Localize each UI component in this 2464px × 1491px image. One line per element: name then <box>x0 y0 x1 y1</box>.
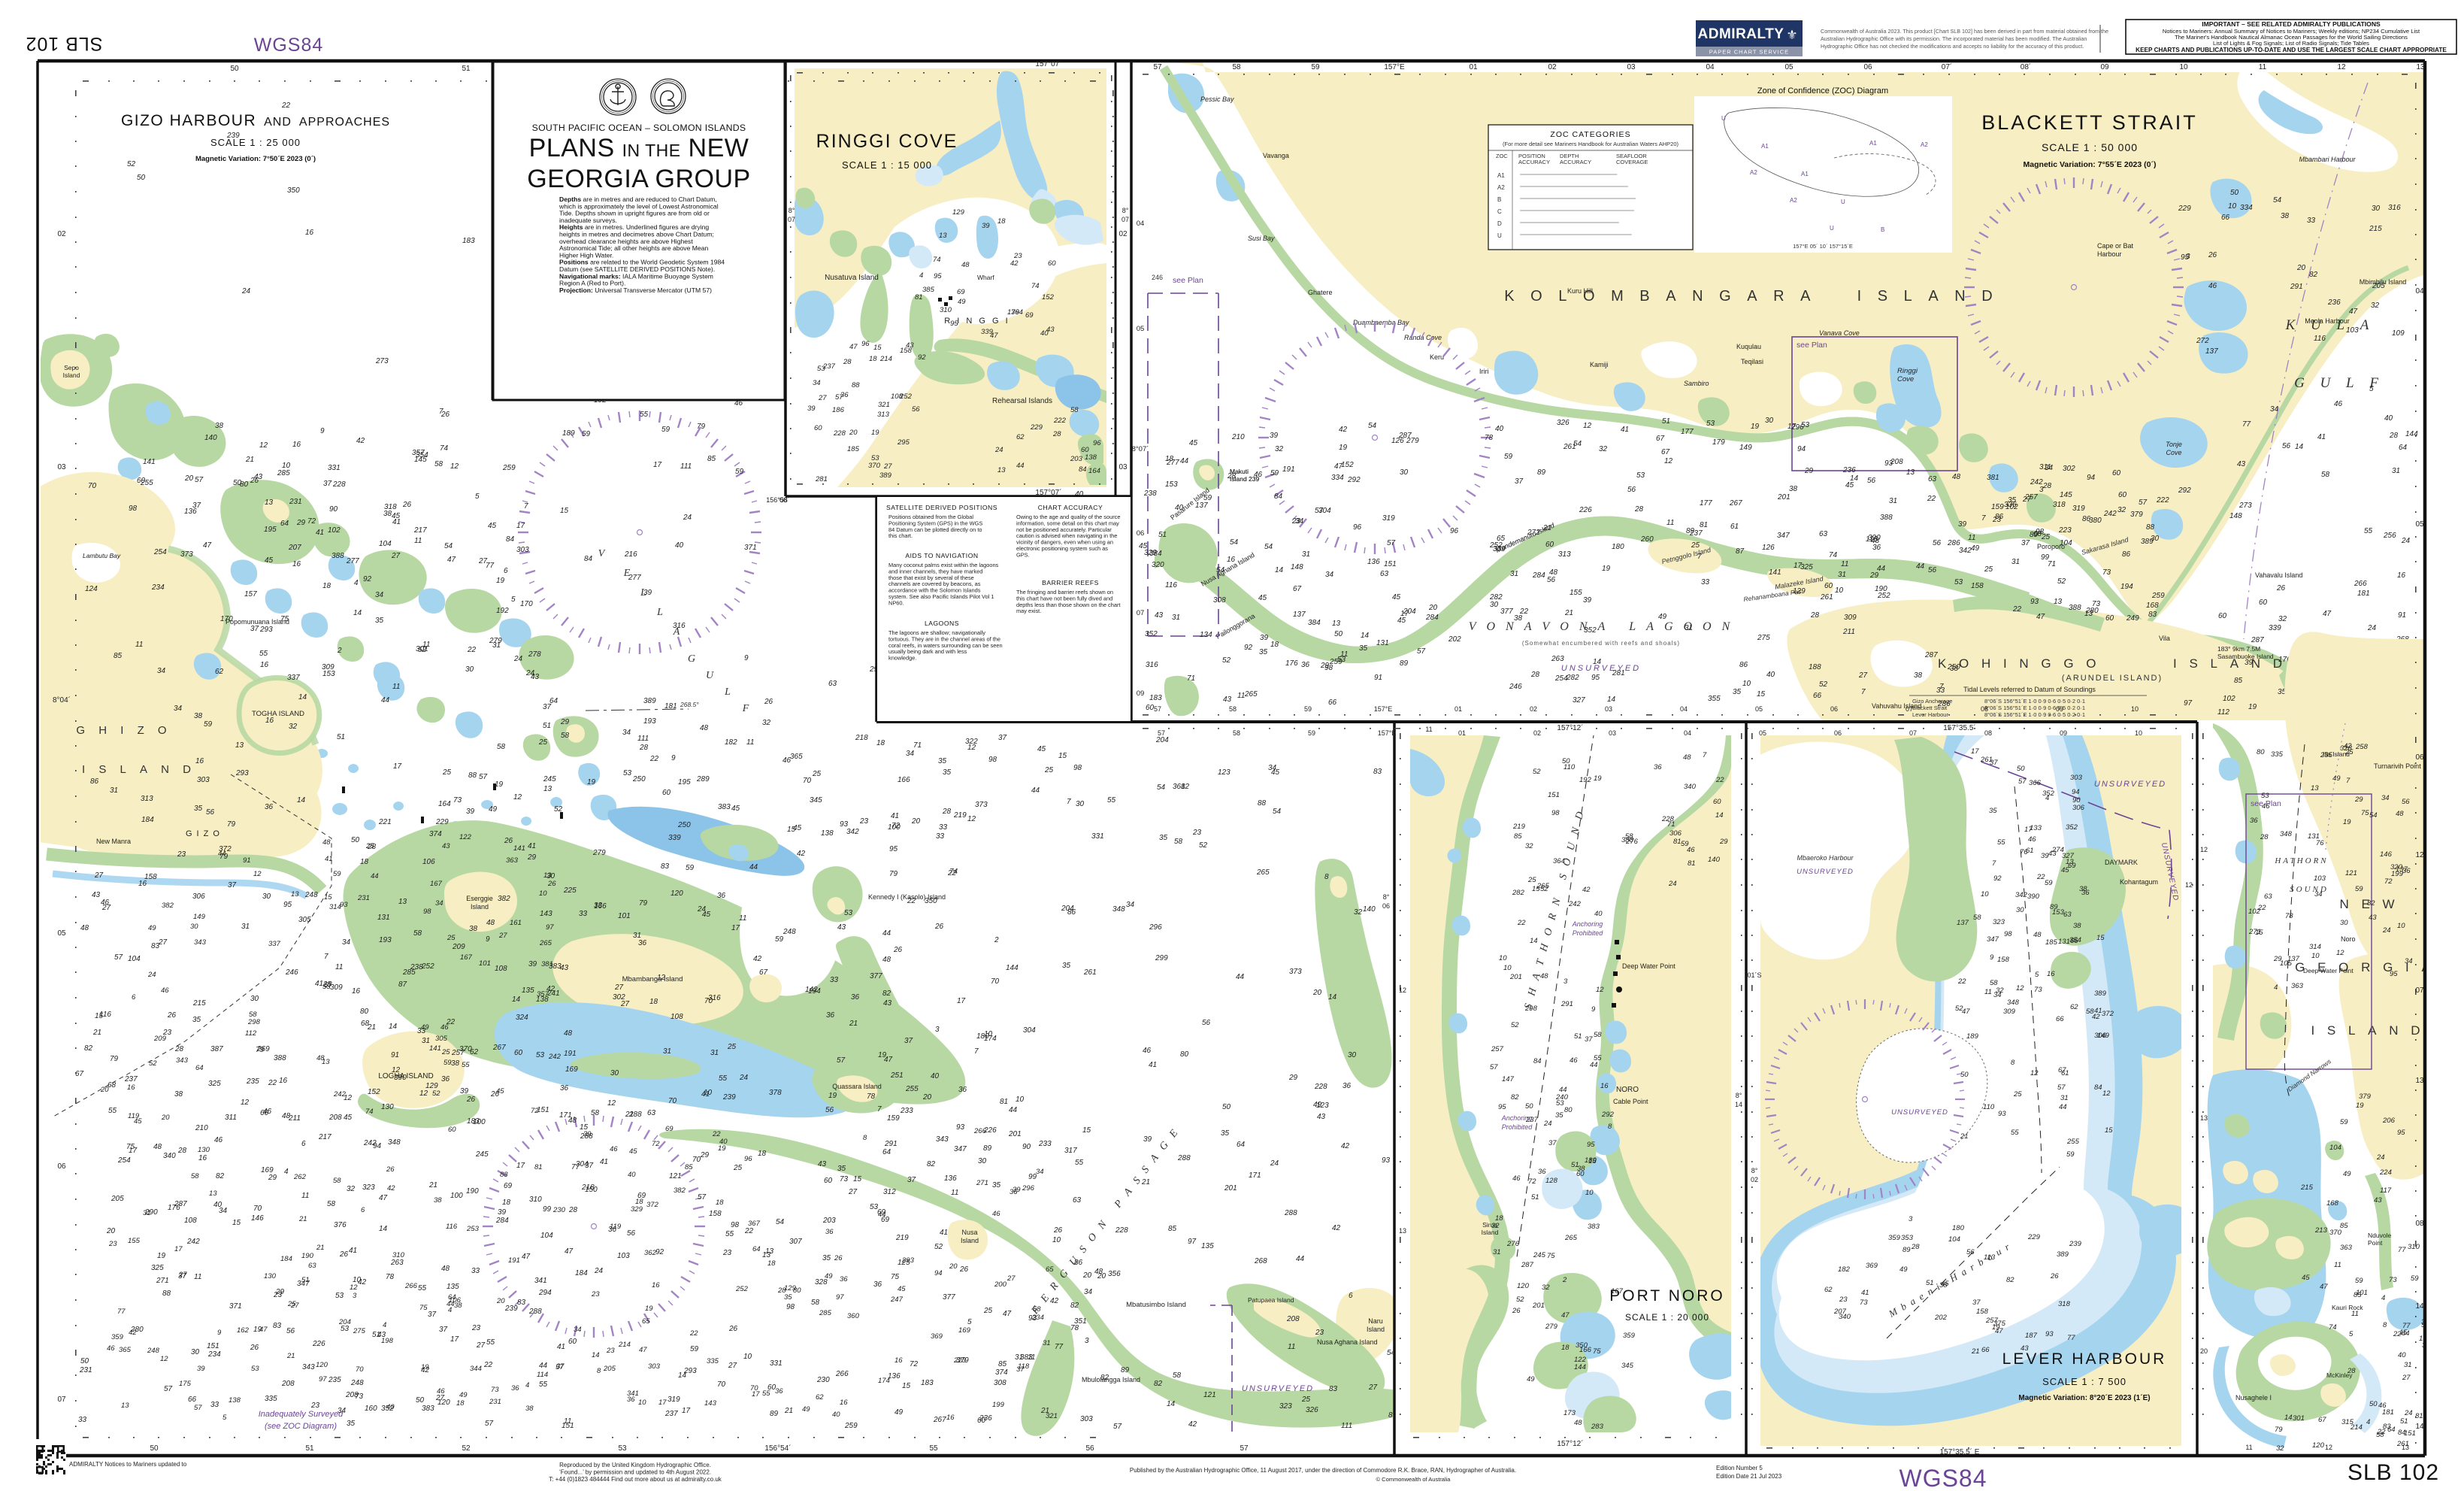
svg-text:363: 363 <box>506 856 519 865</box>
svg-text:52: 52 <box>1819 680 1828 689</box>
svg-text:88: 88 <box>2146 523 2155 532</box>
svg-text:UNSURVEYED: UNSURVEYED <box>1797 868 1854 876</box>
svg-text:41: 41 <box>1621 426 1629 434</box>
svg-text:54: 54 <box>2369 811 2378 820</box>
svg-text:57: 57 <box>2018 777 2027 786</box>
svg-text:A2: A2 <box>1750 169 1757 176</box>
svg-text:340: 340 <box>163 1152 176 1160</box>
svg-text:59: 59 <box>661 426 670 434</box>
svg-text:81: 81 <box>534 1163 543 1171</box>
svg-text:189: 189 <box>562 429 575 438</box>
svg-text:36: 36 <box>560 1084 569 1092</box>
svg-text:86: 86 <box>1074 1259 1083 1267</box>
svg-text:10: 10 <box>1981 890 1989 899</box>
svg-text:25: 25 <box>538 738 548 747</box>
svg-text:254: 254 <box>153 548 167 556</box>
svg-text:63: 63 <box>2264 892 2272 901</box>
svg-text:28: 28 <box>2260 833 2269 841</box>
svg-text:UNSURVEYED: UNSURVEYED <box>1891 1108 1948 1117</box>
svg-text:12: 12 <box>657 974 666 982</box>
svg-text:106: 106 <box>422 858 435 866</box>
svg-text:46: 46 <box>1254 471 1263 479</box>
svg-text:73: 73 <box>840 1175 849 1183</box>
svg-text:248: 248 <box>304 891 318 899</box>
svg-text:241: 241 <box>546 989 560 998</box>
svg-text:6: 6 <box>1349 1292 1353 1300</box>
svg-text:92: 92 <box>918 353 926 362</box>
svg-text:258: 258 <box>2355 743 2369 751</box>
svg-text:29: 29 <box>1804 467 1814 475</box>
svg-text:34: 34 <box>2405 957 2413 965</box>
svg-text:58: 58 <box>191 1172 199 1180</box>
svg-text:51: 51 <box>372 1331 380 1339</box>
svg-text:10: 10 <box>2397 922 2405 930</box>
svg-text:9: 9 <box>320 427 325 435</box>
svg-text:373: 373 <box>975 801 988 809</box>
svg-text:152: 152 <box>368 1088 380 1096</box>
svg-text:22: 22 <box>483 1361 493 1369</box>
svg-text:31: 31 <box>1015 1353 1023 1362</box>
svg-text:156°54´: 156°54´ <box>764 1444 791 1453</box>
svg-text:31: 31 <box>2060 1094 2069 1102</box>
svg-text:252: 252 <box>1489 541 1503 550</box>
svg-text:58: 58 <box>1233 729 1240 737</box>
svg-text:382: 382 <box>498 895 510 903</box>
svg-text:37: 37 <box>904 1037 913 1045</box>
svg-text:58: 58 <box>497 743 506 751</box>
svg-text:27: 27 <box>848 1188 858 1196</box>
svg-text:206: 206 <box>2382 1117 2396 1125</box>
svg-text:10: 10 <box>1742 680 1751 688</box>
svg-text:372: 372 <box>646 1201 659 1209</box>
svg-text:38: 38 <box>1789 485 1798 493</box>
svg-text:214: 214 <box>618 1341 631 1349</box>
svg-text:39: 39 <box>982 222 990 230</box>
svg-text:35: 35 <box>837 1165 846 1173</box>
svg-text:56: 56 <box>825 1106 834 1114</box>
svg-text:118: 118 <box>1018 1362 1030 1371</box>
svg-text:67: 67 <box>1661 448 1670 456</box>
svg-text:35: 35 <box>1259 648 1268 656</box>
svg-text:13: 13 <box>322 1058 330 1066</box>
svg-text:58: 58 <box>591 1109 600 1117</box>
svg-text:48: 48 <box>486 919 495 927</box>
svg-text:7: 7 <box>1703 751 1707 759</box>
svg-text:108: 108 <box>184 1217 197 1225</box>
svg-text:34: 34 <box>813 379 821 387</box>
svg-text:230: 230 <box>816 1376 830 1384</box>
svg-text:52: 52 <box>1955 1005 1963 1013</box>
svg-text:48: 48 <box>961 261 970 269</box>
svg-text:77: 77 <box>2242 420 2251 429</box>
svg-text:385: 385 <box>922 286 935 294</box>
svg-text:265: 265 <box>1244 690 1258 699</box>
svg-text:39: 39 <box>498 1208 507 1217</box>
svg-text:18: 18 <box>502 1199 511 1207</box>
svg-text:84: 84 <box>506 535 515 544</box>
svg-text:261: 261 <box>1820 593 1833 602</box>
svg-text:28: 28 <box>843 358 852 366</box>
svg-text:56: 56 <box>286 1327 295 1335</box>
svg-text:59: 59 <box>775 935 784 944</box>
svg-text:69: 69 <box>881 1216 890 1224</box>
svg-text:7: 7 <box>1067 798 1071 806</box>
svg-text:37: 37 <box>439 1326 448 1334</box>
svg-text:59: 59 <box>2411 1274 2419 1283</box>
svg-text:271: 271 <box>976 1179 988 1187</box>
svg-text:215: 215 <box>2369 225 2382 233</box>
svg-text:20: 20 <box>922 1093 932 1102</box>
svg-text:29: 29 <box>1719 838 1728 846</box>
svg-text:50: 50 <box>1222 1103 1231 1111</box>
svg-text:45: 45 <box>898 1285 906 1293</box>
svg-text:60: 60 <box>1146 704 1155 712</box>
svg-text:13: 13 <box>997 466 1006 474</box>
svg-text:15: 15 <box>873 344 882 352</box>
svg-text:379: 379 <box>2359 1092 2372 1101</box>
svg-text:45: 45 <box>134 1117 142 1126</box>
svg-text:208: 208 <box>1890 458 1903 466</box>
svg-text:143: 143 <box>704 1399 717 1408</box>
svg-text:5: 5 <box>222 1414 227 1422</box>
svg-text:85: 85 <box>685 1163 693 1171</box>
svg-text:(Somewhat encumbered with reef: (Somewhat encumbered with reefs and shoa… <box>1522 640 1680 647</box>
svg-text:334: 334 <box>2240 204 2253 212</box>
svg-text:34: 34 <box>1036 1168 1044 1176</box>
svg-text:383: 383 <box>1588 1223 1600 1231</box>
svg-text:07: 07 <box>57 1396 66 1404</box>
svg-text:95: 95 <box>889 845 898 853</box>
svg-text:32: 32 <box>2371 302 2380 310</box>
svg-text:37: 37 <box>1515 477 1524 486</box>
svg-text:26: 26 <box>2208 251 2217 259</box>
svg-text:4: 4 <box>284 1168 289 1176</box>
svg-text:289: 289 <box>696 775 710 783</box>
svg-text:69: 69 <box>1025 311 1034 320</box>
svg-text:72: 72 <box>1528 1177 1536 1186</box>
svg-text:148: 148 <box>1291 563 1303 571</box>
svg-text:49: 49 <box>1971 544 1980 553</box>
svg-text:377: 377 <box>1500 608 1513 616</box>
svg-text:56: 56 <box>1627 486 1636 494</box>
svg-text:255: 255 <box>2066 1138 2080 1146</box>
svg-text:18: 18 <box>1561 1344 1570 1352</box>
svg-text:20: 20 <box>849 429 858 437</box>
svg-text:19: 19 <box>2343 818 2351 826</box>
svg-text:56: 56 <box>1928 566 1937 574</box>
svg-text:55: 55 <box>462 1061 470 1069</box>
svg-text:248: 248 <box>782 928 796 936</box>
svg-text:304: 304 <box>1318 507 1331 515</box>
svg-text:09: 09 <box>1137 689 1145 698</box>
svg-text:222: 222 <box>1053 417 1067 425</box>
svg-text:46: 46 <box>101 899 110 907</box>
svg-text:22: 22 <box>2257 904 2266 912</box>
svg-text:141: 141 <box>143 458 156 466</box>
svg-text:98: 98 <box>2004 930 2012 938</box>
svg-text:01: 01 <box>1469 63 1478 71</box>
svg-text:Naru: Naru <box>1368 1317 1383 1325</box>
svg-text:26: 26 <box>959 1265 969 1274</box>
svg-text:44: 44 <box>882 929 891 938</box>
svg-text:86: 86 <box>90 777 99 786</box>
svg-text:05: 05 <box>1137 325 1145 333</box>
svg-text:41: 41 <box>1861 1289 1869 1297</box>
svg-text:359: 359 <box>1623 1332 1636 1340</box>
svg-text:138: 138 <box>821 829 834 838</box>
svg-text:175: 175 <box>179 1380 192 1388</box>
svg-text:39: 39 <box>1958 520 1967 529</box>
svg-text:144: 144 <box>1006 964 1019 972</box>
svg-text:34: 34 <box>906 750 915 758</box>
svg-text:380: 380 <box>2089 517 2102 525</box>
svg-text:21: 21 <box>1971 1347 1980 1356</box>
svg-text:19: 19 <box>828 1092 837 1100</box>
svg-text:59: 59 <box>690 1345 699 1353</box>
svg-text:86: 86 <box>1067 908 1076 917</box>
svg-text:Edition Date 21 Jul 2023: Edition Date 21 Jul 2023 <box>1716 1473 1782 1480</box>
svg-text:08: 08 <box>1984 729 1992 737</box>
svg-text:68: 68 <box>361 1020 370 1028</box>
svg-text:70: 70 <box>991 977 1000 986</box>
svg-text:294: 294 <box>538 1289 552 1297</box>
svg-text:69: 69 <box>504 1182 513 1190</box>
svg-text:44: 44 <box>1180 457 1189 465</box>
svg-text:LEVER HARBOUR: LEVER HARBOUR <box>2002 1350 2167 1368</box>
svg-text:32: 32 <box>1525 842 1533 850</box>
svg-text:335: 335 <box>2271 750 2284 759</box>
svg-text:56: 56 <box>912 405 920 414</box>
svg-text:226: 226 <box>312 1340 325 1348</box>
svg-text:18: 18 <box>767 1259 776 1268</box>
svg-text:Wharf: Wharf <box>977 274 994 281</box>
svg-text:248: 248 <box>350 1379 364 1387</box>
svg-text:07: 07 <box>1122 216 1129 223</box>
svg-text:121: 121 <box>1203 1391 1216 1399</box>
svg-text:82: 82 <box>2006 1276 2014 1284</box>
svg-text:235: 235 <box>328 1376 341 1384</box>
svg-text:21: 21 <box>298 1215 307 1223</box>
svg-text:52: 52 <box>462 1444 471 1453</box>
svg-text:18: 18 <box>997 217 1006 226</box>
svg-text:135: 135 <box>446 1283 459 1291</box>
svg-text:47: 47 <box>1561 1311 1570 1320</box>
svg-text:36: 36 <box>1010 1188 1018 1196</box>
svg-text:59: 59 <box>2045 879 2053 887</box>
svg-text:366: 366 <box>2029 779 2042 787</box>
svg-text:55: 55 <box>418 1284 427 1293</box>
svg-text:353: 353 <box>1901 1234 1914 1242</box>
svg-text:292: 292 <box>1347 476 1361 484</box>
svg-text:377: 377 <box>943 1293 955 1302</box>
svg-text:31: 31 <box>2392 467 2400 475</box>
svg-text:93: 93 <box>1998 1110 2006 1118</box>
svg-text:183° 9km 7.5M: 183° 9km 7.5M <box>2217 645 2260 653</box>
svg-text:253: 253 <box>466 1225 480 1233</box>
svg-text:32: 32 <box>1599 445 1608 453</box>
svg-text:48: 48 <box>882 956 891 964</box>
svg-text:71: 71 <box>1187 674 1195 683</box>
svg-text:8: 8 <box>2011 1059 2015 1067</box>
svg-text:283: 283 <box>1591 1423 1604 1431</box>
svg-text:22: 22 <box>2036 873 2045 881</box>
svg-text:104: 104 <box>1948 1235 1960 1244</box>
svg-text:12: 12 <box>513 793 522 802</box>
svg-text:389: 389 <box>2141 538 2154 546</box>
svg-text:46: 46 <box>992 1210 1000 1218</box>
svg-text:167: 167 <box>460 953 473 962</box>
svg-text:40: 40 <box>931 1072 940 1080</box>
svg-text:Vila: Vila <box>2159 635 2170 642</box>
svg-text:42: 42 <box>1339 426 1348 434</box>
svg-text:167: 167 <box>430 880 443 888</box>
svg-text:B: B <box>1497 196 1501 203</box>
svg-text:35: 35 <box>938 757 947 765</box>
svg-text:267: 267 <box>1729 499 1742 508</box>
svg-text:see Plan: see Plan <box>1797 341 1827 350</box>
svg-text:Sepo: Sepo <box>64 364 79 371</box>
svg-text:33: 33 <box>579 910 588 918</box>
svg-text:72: 72 <box>652 1140 660 1148</box>
svg-text:02: 02 <box>1751 1176 1758 1183</box>
svg-text:A2: A2 <box>1497 184 1505 191</box>
svg-text:41: 41 <box>557 1343 565 1351</box>
svg-text:45: 45 <box>1189 439 1198 447</box>
svg-text:22: 22 <box>689 1329 698 1338</box>
svg-text:43: 43 <box>531 673 540 681</box>
svg-text:224: 224 <box>2379 1168 2392 1177</box>
svg-text:21: 21 <box>1542 524 1551 532</box>
svg-text:135: 135 <box>522 986 534 995</box>
svg-text:246: 246 <box>285 968 298 977</box>
svg-text:82: 82 <box>1100 1374 1109 1382</box>
svg-text:40: 40 <box>719 1138 728 1146</box>
svg-text:LAGOONS: LAGOONS <box>925 620 959 627</box>
svg-text:228: 228 <box>833 429 846 438</box>
svg-text:Magnetic Variation: 7°55´E 202: Magnetic Variation: 7°55´E 2023 (0´) <box>2024 160 2157 169</box>
svg-text:36: 36 <box>638 939 647 947</box>
svg-text:208: 208 <box>1286 1315 1300 1323</box>
svg-text:57: 57 <box>1158 729 1165 737</box>
svg-text:28: 28 <box>639 744 649 752</box>
svg-text:59: 59 <box>1304 705 1312 713</box>
svg-text:60: 60 <box>1713 798 1721 806</box>
svg-text:29: 29 <box>296 519 306 527</box>
svg-text:SCALE 1 : 15 000: SCALE 1 : 15 000 <box>842 159 932 171</box>
svg-text:313: 313 <box>877 411 890 419</box>
svg-text:23: 23 <box>859 817 869 826</box>
svg-text:06: 06 <box>1830 705 1838 713</box>
svg-text:44: 44 <box>1590 1061 1598 1069</box>
svg-text:153: 153 <box>1165 480 1178 489</box>
svg-text:22: 22 <box>1715 776 1724 784</box>
svg-text:25: 25 <box>1527 876 1536 884</box>
svg-text:379: 379 <box>2130 511 2143 519</box>
svg-text:155: 155 <box>128 1237 141 1245</box>
svg-text:74: 74 <box>1031 282 1040 290</box>
svg-text:78: 78 <box>2285 912 2293 920</box>
svg-text:10: 10 <box>638 1399 646 1407</box>
svg-text:05: 05 <box>1755 705 1763 713</box>
svg-text:348: 348 <box>1112 905 1125 914</box>
svg-text:370: 370 <box>459 1045 472 1053</box>
svg-text:334: 334 <box>1331 474 1344 482</box>
svg-text:205: 205 <box>110 1195 124 1203</box>
svg-text:8: 8 <box>2383 1321 2387 1329</box>
svg-text:45: 45 <box>2061 866 2069 874</box>
svg-text:56: 56 <box>2282 442 2291 450</box>
svg-text:23: 23 <box>1315 1329 1324 1337</box>
svg-text:50: 50 <box>351 836 360 844</box>
svg-text:151: 151 <box>1384 560 1397 568</box>
svg-text:A2: A2 <box>1921 141 1928 148</box>
svg-text:176: 176 <box>1285 659 1298 668</box>
svg-text:New Manra: New Manra <box>96 838 131 845</box>
svg-text:01: 01 <box>1458 729 1466 737</box>
svg-text:136: 136 <box>944 1174 957 1183</box>
svg-text:10: 10 <box>2311 952 2320 960</box>
svg-text:55: 55 <box>929 1444 938 1453</box>
svg-text:59: 59 <box>582 430 591 438</box>
svg-text:374: 374 <box>995 1368 1008 1377</box>
svg-text:345: 345 <box>810 796 822 805</box>
svg-text:60: 60 <box>568 1338 577 1346</box>
svg-text:14: 14 <box>298 693 307 702</box>
svg-text:364: 364 <box>1553 857 1565 865</box>
svg-text:64: 64 <box>1237 1141 1246 1149</box>
svg-text:26: 26 <box>466 1096 476 1104</box>
svg-text:30: 30 <box>2016 906 2024 914</box>
svg-text:211: 211 <box>288 1114 301 1123</box>
svg-text:07: 07 <box>1137 609 1145 617</box>
svg-text:268: 268 <box>1254 1257 1267 1265</box>
svg-text:20: 20 <box>1312 989 1322 997</box>
svg-text:electronic positioning system: electronic positioning system such as <box>1016 545 1108 552</box>
svg-text:UNSURVEYED: UNSURVEYED <box>2094 780 2166 789</box>
svg-text:54: 54 <box>1264 543 1273 551</box>
svg-text:81: 81 <box>2415 1412 2423 1420</box>
svg-text:308: 308 <box>994 1379 1006 1387</box>
svg-text:32: 32 <box>289 723 298 731</box>
svg-text:Commonwealth of Australia 2023: Commonwealth of Australia 2023. This pro… <box>1821 28 2108 35</box>
svg-text:111: 111 <box>1341 1422 1352 1430</box>
svg-text:60: 60 <box>2118 491 2127 499</box>
svg-text:208: 208 <box>281 1380 295 1388</box>
svg-text:95: 95 <box>1498 1103 1506 1111</box>
svg-text:24: 24 <box>513 655 523 663</box>
svg-text:168: 168 <box>2146 602 2159 610</box>
svg-text:40: 40 <box>1766 671 1775 679</box>
svg-text:42: 42 <box>1332 1224 1341 1232</box>
svg-text:COVERAGE: COVERAGE <box>1616 159 1648 165</box>
svg-text:54: 54 <box>1230 538 1239 547</box>
svg-text:44: 44 <box>1031 786 1040 795</box>
svg-text:62: 62 <box>1824 1286 1833 1294</box>
svg-text:26: 26 <box>764 698 773 706</box>
svg-text:50: 50 <box>1525 1102 1533 1111</box>
svg-text:37: 37 <box>2021 539 2030 547</box>
svg-text:60: 60 <box>514 1049 523 1057</box>
svg-text:Kauri Rock: Kauri Rock <box>2332 1304 2363 1311</box>
svg-text:see Plan: see Plan <box>1173 276 1203 285</box>
svg-text:17: 17 <box>1400 610 1409 618</box>
svg-text:152: 152 <box>1341 461 1354 469</box>
svg-text:38: 38 <box>451 1059 460 1068</box>
svg-text:82: 82 <box>1181 783 1190 791</box>
svg-text:379: 379 <box>956 1356 969 1365</box>
svg-text:TOGHA ISLAND: TOGHA ISLAND <box>252 710 304 718</box>
svg-text:37: 37 <box>428 1311 437 1319</box>
